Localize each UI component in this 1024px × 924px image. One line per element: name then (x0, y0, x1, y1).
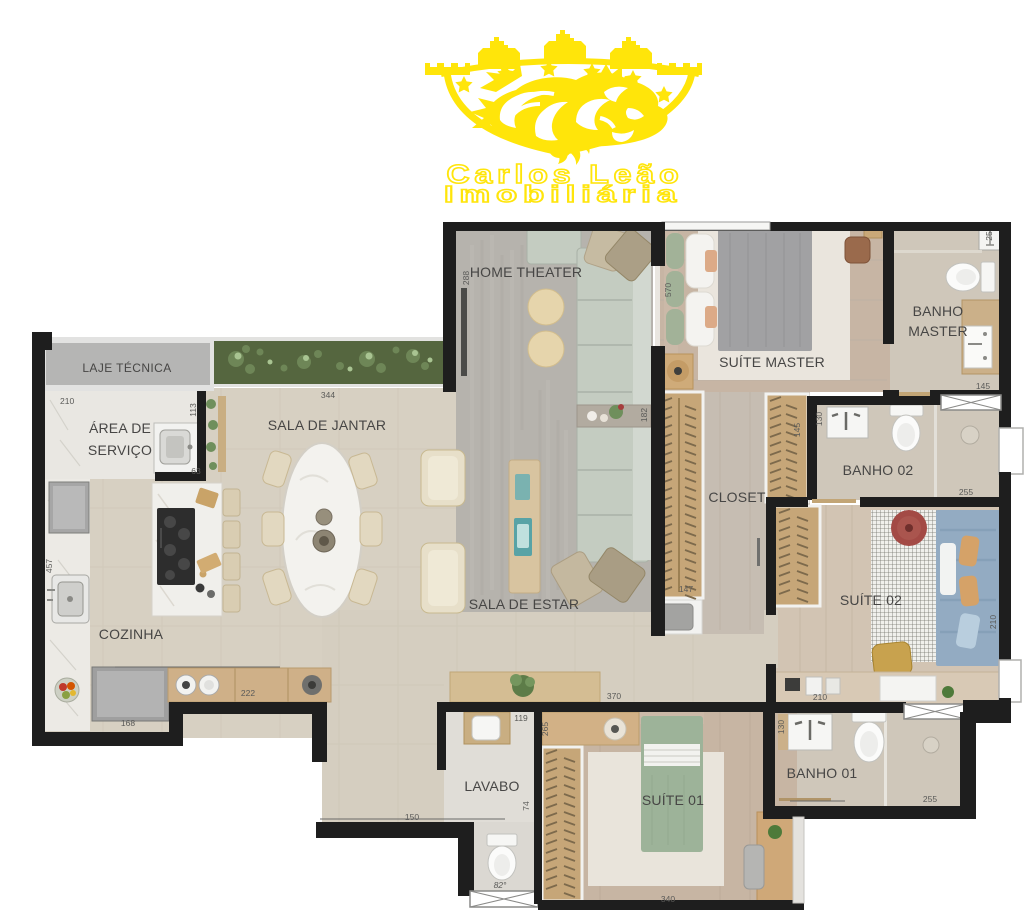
svg-text:SUÍTE MASTER: SUÍTE MASTER (719, 354, 825, 370)
svg-text:570: 570 (663, 283, 673, 297)
svg-text:370: 370 (607, 691, 621, 701)
svg-text:SALA DE ESTAR: SALA DE ESTAR (469, 596, 580, 612)
svg-text:SUÍTE 01: SUÍTE 01 (642, 792, 704, 808)
svg-text:SALA DE JANTAR: SALA DE JANTAR (268, 417, 386, 433)
svg-text:168: 168 (121, 718, 135, 728)
svg-text:LAVABO: LAVABO (464, 778, 519, 794)
svg-text:130: 130 (776, 720, 786, 734)
svg-text:288: 288 (461, 271, 471, 285)
svg-text:145: 145 (792, 423, 802, 437)
svg-text:63: 63 (191, 466, 201, 476)
svg-text:210: 210 (988, 615, 998, 629)
svg-text:265: 265 (540, 722, 550, 736)
svg-text:CLOSET: CLOSET (708, 489, 765, 505)
svg-text:150: 150 (405, 812, 419, 822)
svg-text:25: 25 (984, 231, 994, 241)
svg-text:210: 210 (60, 396, 74, 406)
svg-text:BANHO: BANHO (913, 303, 964, 319)
svg-text:SERVIÇO: SERVIÇO (88, 442, 152, 458)
svg-text:457: 457 (44, 559, 54, 573)
svg-text:MASTER: MASTER (908, 323, 968, 339)
svg-text:222: 222 (241, 688, 255, 698)
svg-text:340: 340 (661, 894, 675, 904)
svg-text:SUÍTE 02: SUÍTE 02 (840, 592, 902, 608)
svg-text:255: 255 (959, 487, 973, 497)
svg-text:COZINHA: COZINHA (99, 626, 164, 642)
svg-text:119: 119 (514, 713, 528, 723)
svg-text:LAJE TÉCNICA: LAJE TÉCNICA (82, 360, 171, 375)
svg-text:BANHO 02: BANHO 02 (843, 462, 914, 478)
svg-text:113: 113 (188, 403, 198, 417)
svg-text:210: 210 (813, 692, 827, 702)
svg-text:74: 74 (521, 801, 531, 811)
svg-text:344: 344 (321, 390, 335, 400)
svg-text:BANHO 01: BANHO 01 (787, 765, 858, 781)
svg-text:145: 145 (976, 381, 990, 391)
svg-text:HOME THEATER: HOME THEATER (470, 264, 582, 280)
svg-text:182: 182 (639, 408, 649, 422)
svg-text:ÁREA DE: ÁREA DE (89, 420, 151, 436)
svg-text:Imobiliária: Imobiliária (444, 181, 682, 207)
svg-text:130: 130 (814, 412, 824, 426)
svg-text:82°: 82° (494, 880, 507, 890)
svg-text:255: 255 (923, 794, 937, 804)
svg-text:147: 147 (679, 584, 693, 594)
